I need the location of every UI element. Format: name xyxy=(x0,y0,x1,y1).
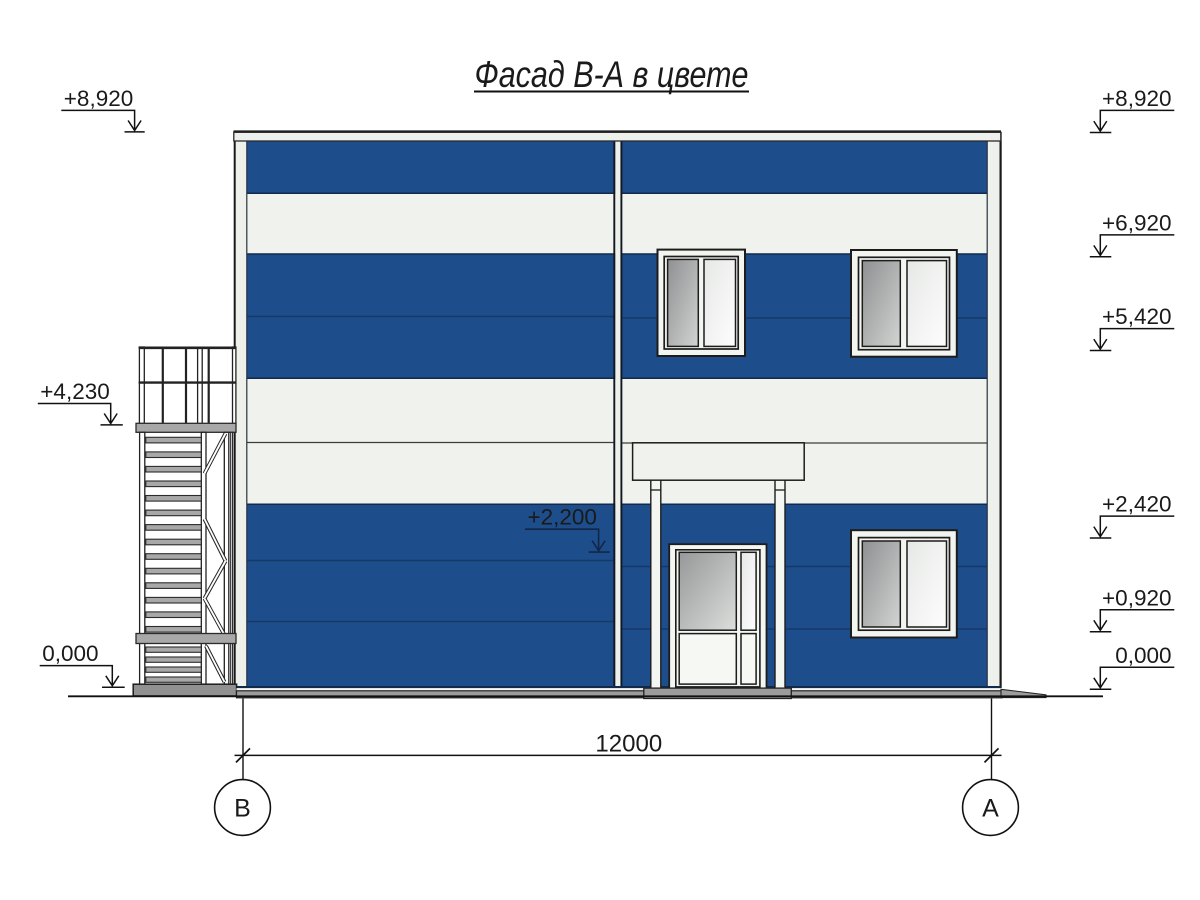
svg-text:+0,920: +0,920 xyxy=(1102,585,1171,610)
svg-text:+2,200: +2,200 xyxy=(528,505,597,530)
svg-text:А: А xyxy=(982,794,999,822)
svg-text:+8,920: +8,920 xyxy=(1102,86,1171,111)
svg-text:0,000: 0,000 xyxy=(42,641,98,666)
svg-text:12000: 12000 xyxy=(595,731,662,758)
svg-text:+4,230: +4,230 xyxy=(40,379,109,404)
svg-text:+6,920: +6,920 xyxy=(1102,210,1171,235)
svg-text:+5,420: +5,420 xyxy=(1102,304,1171,329)
svg-text:+8,920: +8,920 xyxy=(64,86,133,111)
svg-text:Фасад В-А в цвете: Фасад В-А в цвете xyxy=(475,54,749,95)
svg-text:+2,420: +2,420 xyxy=(1102,492,1171,517)
svg-text:В: В xyxy=(234,794,251,822)
svg-text:0,000: 0,000 xyxy=(1115,643,1171,668)
